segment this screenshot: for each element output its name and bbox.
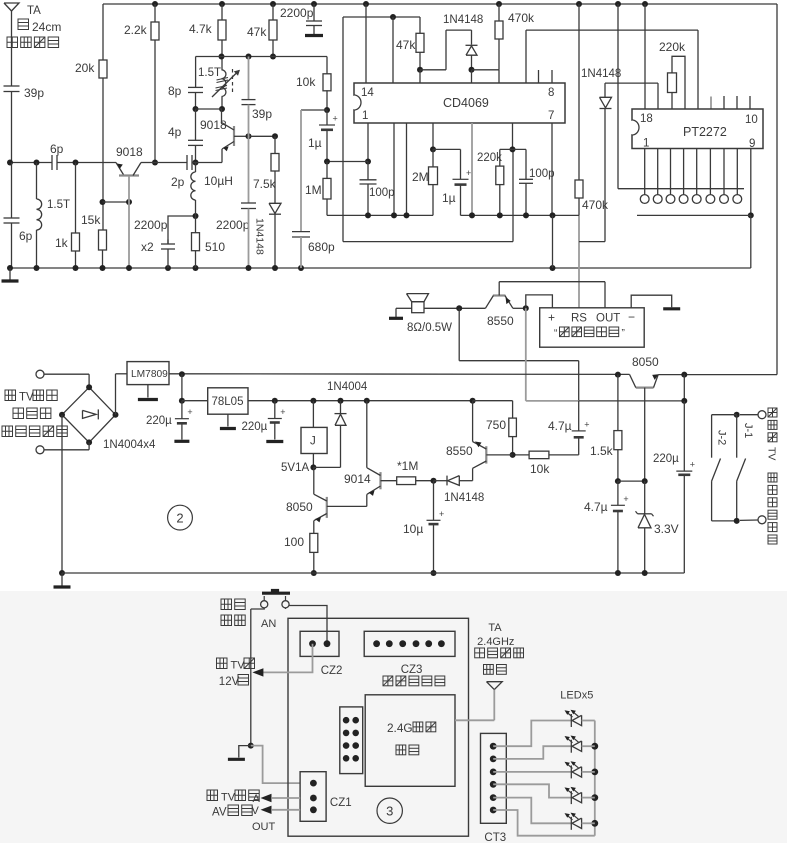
- svg-text:TA: TA: [488, 622, 502, 634]
- svg-text:J-1: J-1: [742, 423, 754, 438]
- svg-text:8Ω/0.5W: 8Ω/0.5W: [407, 322, 452, 334]
- svg-text:1: 1: [362, 110, 368, 122]
- svg-text:6p: 6p: [19, 229, 33, 243]
- svg-text:18: 18: [640, 113, 653, 125]
- svg-text:220k: 220k: [659, 40, 686, 54]
- svg-text:LEDx5: LEDx5: [560, 690, 593, 702]
- svg-text:100p: 100p: [529, 168, 555, 180]
- svg-text:1.5T: 1.5T: [47, 199, 70, 211]
- svg-text:1N4148: 1N4148: [443, 14, 483, 26]
- svg-text:8: 8: [548, 87, 554, 99]
- svg-text:220µ: 220µ: [653, 453, 679, 465]
- svg-text:750: 750: [486, 418, 506, 432]
- svg-text:10µH: 10µH: [204, 174, 233, 188]
- svg-text:1: 1: [643, 138, 649, 150]
- svg-text:CD4069: CD4069: [443, 96, 489, 110]
- svg-text:20k: 20k: [75, 61, 95, 75]
- svg-text:220µ: 220µ: [242, 421, 268, 433]
- svg-text:220µ: 220µ: [146, 415, 172, 427]
- svg-text:J: J: [310, 436, 316, 448]
- svg-text:*1M: *1M: [397, 459, 418, 473]
- svg-text:+: +: [548, 311, 555, 325]
- svg-text:1M: 1M: [305, 183, 322, 197]
- svg-text:2.4GHz: 2.4GHz: [477, 636, 514, 648]
- svg-text:4p: 4p: [168, 125, 182, 139]
- svg-text:2.4G: 2.4G: [387, 721, 413, 735]
- svg-text:CT3: CT3: [484, 832, 506, 843]
- svg-text:+: +: [280, 407, 285, 417]
- svg-text:+: +: [623, 494, 628, 504]
- svg-text:9014: 9014: [344, 472, 371, 486]
- svg-text:8550: 8550: [446, 444, 473, 458]
- svg-text:4.7µ: 4.7µ: [548, 419, 572, 433]
- svg-text:+: +: [439, 509, 444, 519]
- svg-text:9018: 9018: [116, 145, 143, 159]
- svg-text:TV: TV: [19, 392, 34, 404]
- svg-text:”: ”: [622, 328, 625, 339]
- svg-text:1N4148: 1N4148: [254, 218, 266, 255]
- svg-text:8550: 8550: [487, 314, 514, 328]
- svg-text:680p: 680p: [308, 240, 335, 254]
- svg-text:x2: x2: [141, 240, 154, 254]
- svg-text:2M: 2M: [412, 170, 429, 184]
- svg-text:9: 9: [749, 138, 755, 150]
- svg-text:2200p: 2200p: [134, 218, 168, 232]
- svg-text:39p: 39p: [252, 107, 272, 121]
- svg-text:1µ: 1µ: [308, 136, 322, 150]
- svg-text:3: 3: [386, 804, 393, 819]
- svg-text:RS: RS: [571, 313, 587, 325]
- svg-text:CZ2: CZ2: [321, 665, 343, 677]
- svg-text:6p: 6p: [50, 142, 64, 156]
- svg-text:2p: 2p: [171, 175, 185, 189]
- svg-text:100: 100: [284, 535, 304, 549]
- svg-text:1N4148: 1N4148: [444, 492, 484, 504]
- svg-text:7.5k: 7.5k: [253, 177, 277, 191]
- svg-text:1k: 1k: [55, 236, 69, 250]
- svg-text:2: 2: [176, 511, 183, 526]
- svg-text:OUT: OUT: [252, 821, 276, 833]
- svg-text:78L05: 78L05: [212, 396, 244, 408]
- svg-text:1µ: 1µ: [442, 191, 456, 205]
- svg-text:AV: AV: [212, 807, 227, 819]
- svg-text:100p: 100p: [369, 187, 395, 199]
- svg-text:1.5k: 1.5k: [590, 444, 614, 458]
- svg-text:8050: 8050: [286, 500, 313, 514]
- svg-text:5V1A: 5V1A: [281, 462, 309, 474]
- svg-text:510: 510: [205, 240, 225, 254]
- svg-text:TV: TV: [766, 447, 778, 460]
- svg-text:J-2: J-2: [716, 430, 728, 445]
- svg-text:10k: 10k: [530, 462, 550, 476]
- svg-text:10: 10: [745, 114, 758, 126]
- svg-text:OUT: OUT: [596, 313, 620, 325]
- svg-text:47k: 47k: [396, 38, 416, 52]
- svg-text:2.2k: 2.2k: [124, 23, 148, 37]
- svg-text:CZ1: CZ1: [330, 797, 352, 809]
- svg-text:+: +: [466, 168, 471, 178]
- svg-text:470k: 470k: [508, 11, 535, 25]
- svg-text:47k: 47k: [247, 25, 267, 39]
- svg-text:10µ: 10µ: [403, 522, 423, 536]
- svg-text:14: 14: [361, 87, 374, 99]
- svg-text:24cm: 24cm: [32, 20, 61, 34]
- svg-text:1.5T: 1.5T: [198, 67, 221, 79]
- svg-text:“: “: [554, 328, 557, 339]
- svg-text:7: 7: [548, 110, 554, 122]
- svg-text:1N4148: 1N4148: [581, 68, 621, 80]
- svg-text:+: +: [690, 460, 695, 470]
- svg-text:2200p: 2200p: [216, 218, 250, 232]
- svg-text:TA: TA: [27, 5, 41, 17]
- svg-text:TV: TV: [221, 792, 236, 804]
- svg-text:15k: 15k: [81, 213, 101, 227]
- svg-text:10k: 10k: [296, 75, 316, 89]
- svg-text:AN: AN: [261, 618, 276, 630]
- svg-text:4.7k: 4.7k: [189, 22, 213, 36]
- svg-text:4.7µ: 4.7µ: [584, 500, 608, 514]
- svg-text:CZ3: CZ3: [401, 664, 423, 676]
- svg-text:220k: 220k: [477, 152, 502, 164]
- svg-text:8050: 8050: [632, 355, 659, 369]
- svg-text:+: +: [187, 407, 192, 417]
- svg-text:3.3V: 3.3V: [654, 522, 679, 536]
- svg-text:LM7809: LM7809: [131, 369, 168, 380]
- svg-text:+: +: [333, 114, 338, 124]
- svg-text:1N4004x4: 1N4004x4: [103, 439, 156, 451]
- svg-text:8p: 8p: [168, 84, 182, 98]
- svg-text:39p: 39p: [24, 86, 44, 100]
- svg-text:+: +: [584, 419, 589, 429]
- svg-text:9018: 9018: [200, 118, 227, 132]
- svg-text:12V: 12V: [219, 676, 240, 688]
- svg-text:−: −: [628, 310, 635, 324]
- svg-text:PT2272: PT2272: [683, 125, 727, 139]
- svg-text:2200p: 2200p: [280, 6, 314, 20]
- svg-text:TV: TV: [231, 660, 246, 672]
- svg-text:1N4004: 1N4004: [327, 381, 368, 393]
